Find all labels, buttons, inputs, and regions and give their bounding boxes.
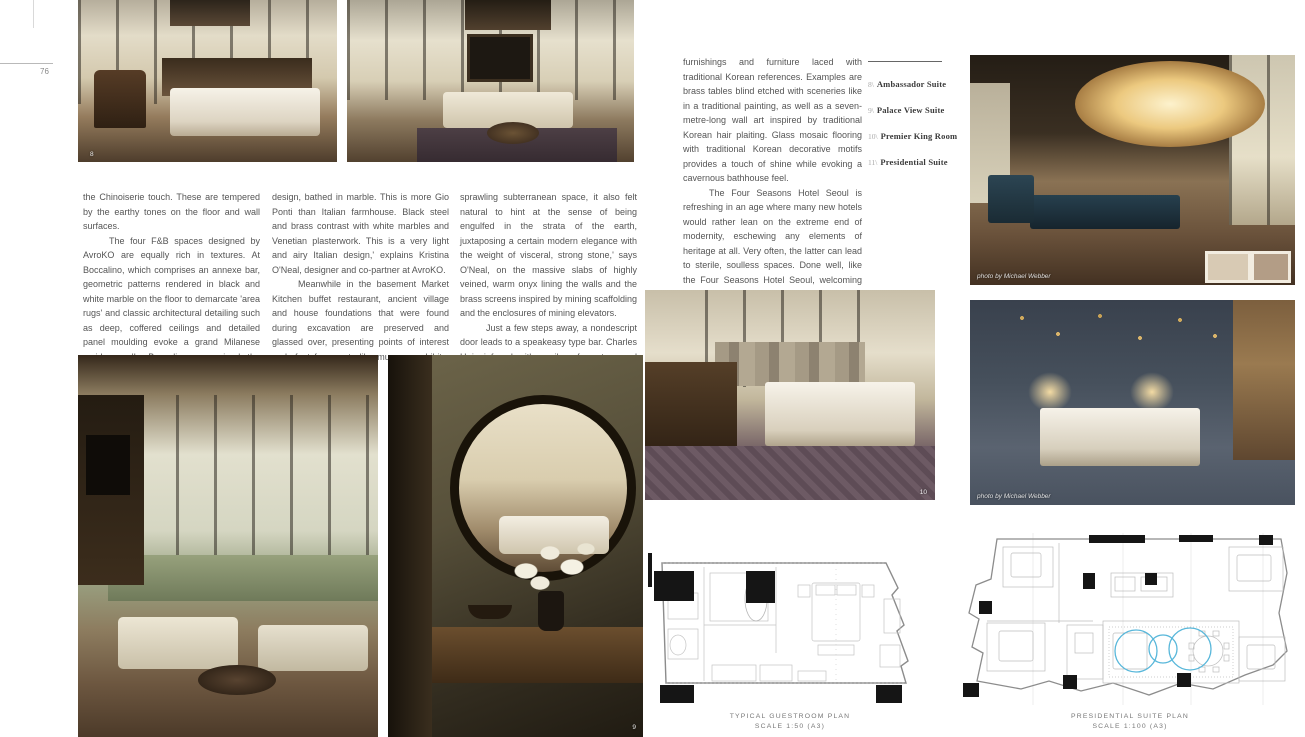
- photo-number-badge: 8: [90, 151, 94, 158]
- caption-number: 10\: [868, 132, 878, 141]
- bedside-lamp: [1028, 372, 1072, 412]
- photo-premier-king-room: 10: [645, 290, 935, 500]
- caption-label: Ambassador Suite: [877, 79, 946, 89]
- photo-suite-living-room: [347, 0, 634, 162]
- photo-lounge-chandelier: photo by Michael Webber: [970, 55, 1295, 285]
- tv-cabinet: [467, 34, 533, 82]
- folio-rule: [0, 63, 53, 64]
- presidential-plan-caption: PRESIDENTIAL SUITE PLAN SCALE 1:100 (A3): [1030, 712, 1230, 732]
- plan-title: TYPICAL GUESTROOM PLAN: [690, 712, 890, 722]
- paragraph: design, bathed in marble. This is more G…: [272, 190, 449, 277]
- plan-title: PRESIDENTIAL SUITE PLAN: [1030, 712, 1230, 722]
- ceiling-panel: [170, 0, 250, 26]
- round-coffee-table: [198, 665, 276, 695]
- caption-list-rule: [868, 61, 942, 62]
- guestroom-plan-caption: TYPICAL GUESTROOM PLAN SCALE 1:50 (A3): [690, 712, 890, 732]
- sofa: [988, 175, 1034, 223]
- tv-screen: [86, 435, 130, 495]
- bed: [170, 88, 320, 136]
- guestroom-plan-drawing: [648, 533, 932, 705]
- body-column-2: design, bathed in marble. This is more G…: [272, 190, 449, 379]
- sofa: [118, 617, 238, 669]
- photo-living-room-city-view: [78, 355, 378, 737]
- presidential-floor-plan: [963, 533, 1297, 705]
- presidential-plan-drawing: [963, 533, 1297, 705]
- caption-label: Presidential Suite: [880, 157, 947, 167]
- bedside-lamp: [1130, 372, 1174, 412]
- paragraph: sprawling subterranean space, it also fe…: [460, 190, 637, 321]
- caption-number: 9\: [868, 106, 874, 115]
- plan-scale: SCALE 1:50 (A3): [690, 722, 890, 732]
- photo-palace-view-suite: photo by Michael Webber: [970, 300, 1295, 505]
- city-view: [715, 342, 865, 386]
- caption-label: Premier King Room: [881, 131, 958, 141]
- plan-markup-circles: [1115, 628, 1211, 672]
- wooden-bowl: [468, 605, 512, 619]
- photo-number-badge: 10: [920, 489, 927, 496]
- photo-ambassador-suite: 8: [78, 0, 337, 162]
- plan-scale: SCALE 1:100 (A3): [1030, 722, 1230, 732]
- caption-number: 11\: [868, 158, 877, 167]
- photo-mirror-vignette: 9: [388, 355, 643, 737]
- paragraph: furnishings and furniture laced with tra…: [683, 55, 862, 186]
- paragraph: the Chinoiserie touch. These are tempere…: [83, 190, 260, 234]
- armchair: [94, 70, 146, 128]
- magazine-spread: 76 8 the Chinoiserie touch. These are te…: [0, 0, 1305, 737]
- caption-label: Palace View Suite: [877, 105, 945, 115]
- bed: [765, 382, 915, 446]
- vase: [538, 591, 564, 631]
- ceiling-panel: [465, 0, 551, 30]
- wood-panel: [388, 355, 432, 737]
- body-column-3: sprawling subterranean space, it also fe…: [460, 190, 637, 379]
- framed-artwork: [1205, 251, 1251, 283]
- coffee-table: [487, 122, 539, 144]
- guestroom-floor-plan: [648, 533, 932, 705]
- bed: [1040, 408, 1200, 466]
- wood-cabinet: [645, 362, 737, 446]
- hillside-view: [108, 555, 378, 601]
- carpet: [645, 446, 935, 500]
- photo-credit: photo by Michael Webber: [977, 273, 1051, 280]
- photo-number-badge: 9: [632, 724, 636, 731]
- white-flowers: [506, 531, 602, 597]
- page-edge-mark: [33, 0, 34, 28]
- framed-artwork: [1251, 251, 1291, 283]
- chandelier: [1075, 61, 1265, 147]
- shelving: [1233, 300, 1295, 460]
- sofa: [258, 625, 368, 671]
- sofa: [1030, 195, 1180, 229]
- caption-number: 8\: [868, 80, 874, 89]
- sideboard: [432, 627, 643, 683]
- page-number: 76: [40, 67, 49, 76]
- photo-credit: photo by Michael Webber: [977, 493, 1051, 500]
